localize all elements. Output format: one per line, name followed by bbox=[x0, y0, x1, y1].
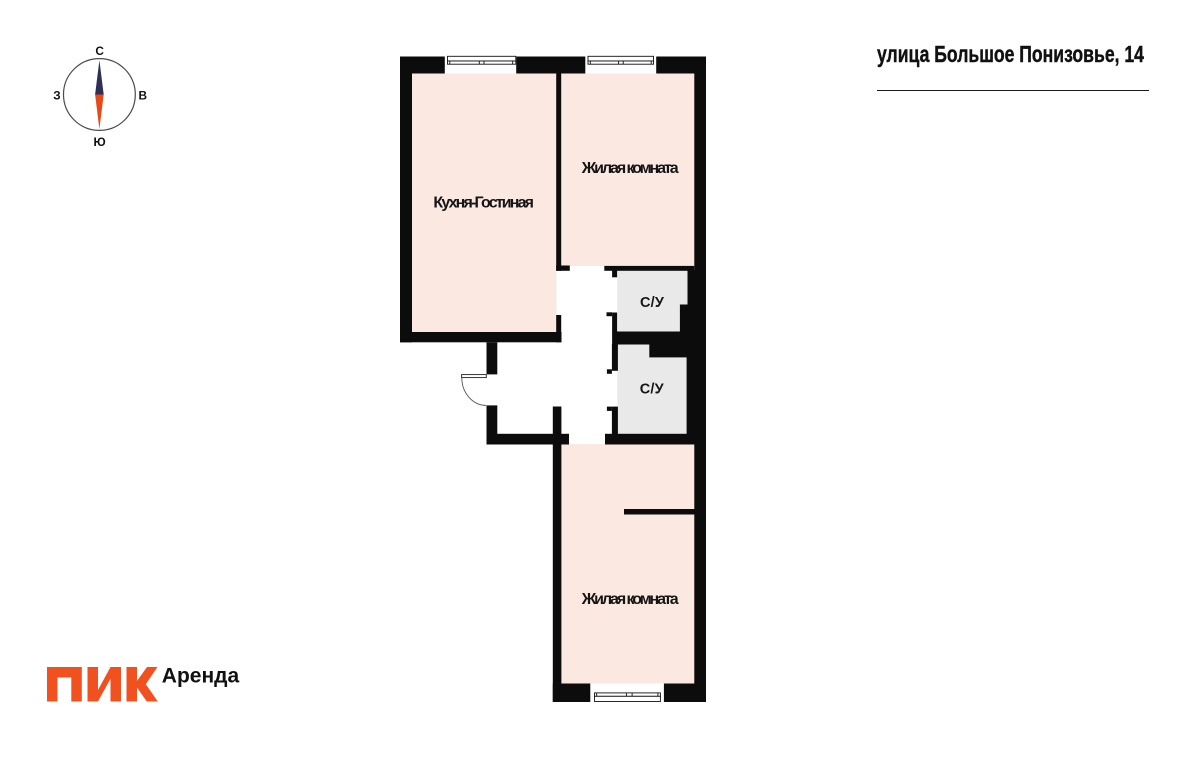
svg-text:С/У: С/У bbox=[640, 382, 665, 398]
svg-text:Кухня-Гостиная: Кухня-Гостиная bbox=[433, 195, 533, 212]
svg-text:Жилая комната: Жилая комната bbox=[581, 160, 679, 177]
svg-text:Жилая комната: Жилая комната bbox=[581, 591, 679, 608]
svg-text:С/У: С/У bbox=[640, 295, 665, 311]
svg-text:Аренда: Аренда bbox=[162, 664, 240, 687]
